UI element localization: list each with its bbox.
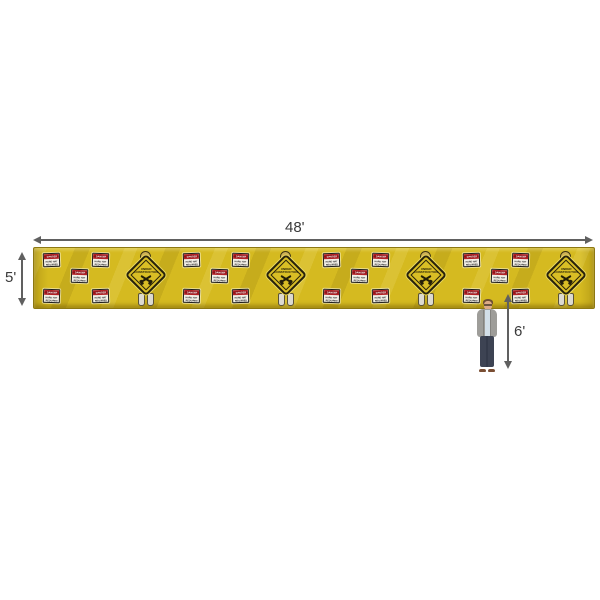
sign-line2: REQUIRED — [325, 299, 337, 300]
danger-hard-hat-sign: DANGER HARD HAT REQUIRED — [92, 289, 109, 304]
danger-hard-hat-sign: DANGER HARD HAT REQUIRED — [71, 269, 88, 284]
sign-line1: HARD HAT — [326, 260, 338, 261]
sign-body: HARD HAT REQUIRED — [93, 295, 108, 303]
danger-oval: DANGER — [212, 271, 227, 275]
diamond-line1: UNDER — [414, 268, 438, 270]
sign-line2: REQUIRED — [73, 279, 85, 280]
diamond-line2: CONSTRUCTION — [274, 271, 298, 273]
sign-body: HARD HAT REQUIRED — [184, 259, 199, 267]
sign-line2: REQUIRED — [374, 263, 386, 264]
danger-header-text: DANGER — [95, 291, 105, 294]
danger-oval: DANGER — [492, 271, 507, 275]
diamond-line2: CONSTRUCTION — [134, 271, 158, 273]
person-height-line — [507, 300, 509, 363]
danger-header-text: DANGER — [186, 291, 196, 294]
sign-line1: HARD HAT — [74, 276, 86, 277]
diamond-sign-content: UNDER CONSTRUCTION — [265, 259, 307, 291]
danger-hard-hat-sign: DANGER HARD HAT REQUIRED — [491, 269, 508, 284]
sign-line2: REQUIRED — [45, 299, 57, 300]
person-legs — [480, 336, 494, 367]
danger-hard-hat-sign: DANGER HARD HAT REQUIRED — [232, 253, 249, 268]
banner-product-mockup: 48' 5' DANGER HARD HAT REQUIRED — [0, 0, 600, 600]
sign-line2: REQUIRED — [235, 299, 247, 300]
arrowhead-down-icon — [18, 298, 26, 306]
construction-banner: DANGER HARD HAT REQUIRED DANGER HARD HAT… — [33, 247, 595, 309]
danger-oval: DANGER — [93, 255, 108, 259]
diamond-line1: UNDER — [274, 268, 298, 270]
danger-header-text: DANGER — [46, 291, 56, 294]
danger-oval: DANGER — [464, 291, 479, 295]
danger-header-text: DANGER — [466, 291, 476, 294]
sign-line2: REQUIRED — [353, 279, 365, 280]
sign-line2: REQUIRED — [185, 299, 197, 300]
diamond-line1: UNDER — [554, 268, 578, 270]
danger-oval: DANGER — [184, 291, 199, 295]
sign-line1: HARD HAT — [375, 260, 387, 261]
hammer-head — [428, 279, 433, 285]
sign-line1: HARD HAT — [466, 296, 478, 297]
sign-line1: HARD HAT — [95, 260, 107, 261]
arrowhead-up-icon — [18, 252, 26, 260]
danger-header-text: DANGER — [326, 255, 336, 258]
hammer-head — [148, 279, 153, 285]
sign-body: HARD HAT REQUIRED — [492, 275, 507, 283]
character-leg — [427, 293, 434, 306]
sign-body: HARD HAT REQUIRED — [212, 275, 227, 283]
hammer-head — [419, 279, 424, 285]
danger-hard-hat-sign: DANGER HARD HAT REQUIRED — [183, 289, 200, 304]
sign-line2: REQUIRED — [94, 263, 106, 264]
sign-line1: HARD HAT — [354, 276, 366, 277]
sign-line1: HARD HAT — [46, 260, 58, 261]
danger-header-text: DANGER — [186, 255, 196, 258]
sign-line2: REQUIRED — [186, 263, 198, 264]
danger-oval: DANGER — [44, 255, 59, 259]
diamond-sign-text: UNDER CONSTRUCTION — [262, 267, 310, 273]
danger-header-text: DANGER — [515, 291, 525, 294]
sign-body: HARD HAT REQUIRED — [72, 275, 87, 283]
sign-body: HARD HAT REQUIRED — [352, 275, 367, 283]
danger-header-text: DANGER — [515, 255, 525, 258]
danger-hard-hat-sign: DANGER HARD HAT REQUIRED — [372, 253, 389, 268]
sign-line1: HARD HAT — [186, 260, 198, 261]
diamond-line2: CONSTRUCTION — [414, 271, 438, 273]
danger-hard-hat-sign: DANGER HARD HAT REQUIRED — [351, 269, 368, 284]
under-construction-character: UNDER CONSTRUCTION — [124, 251, 168, 306]
danger-header-text: DANGER — [74, 271, 84, 274]
danger-header-text: DANGER — [46, 255, 56, 258]
sign-body: HARD HAT REQUIRED — [44, 259, 59, 267]
diamond-sign-content: UNDER CONSTRUCTION — [545, 259, 587, 291]
sign-line2: REQUIRED — [234, 263, 246, 264]
sign-body: HARD HAT REQUIRED — [233, 259, 248, 267]
danger-header-text: DANGER — [494, 271, 504, 274]
under-construction-character: UNDER CONSTRUCTION — [404, 251, 448, 306]
diamond-line2: CONSTRUCTION — [554, 271, 578, 273]
diamond-sign-text: UNDER CONSTRUCTION — [122, 267, 170, 273]
sign-line1: HARD HAT — [235, 260, 247, 261]
character-leg — [147, 293, 154, 306]
jacket-lapel — [490, 310, 491, 336]
sign-line1: HARD HAT — [95, 296, 107, 297]
danger-hard-hat-sign: DANGER HARD HAT REQUIRED — [372, 289, 389, 304]
sign-body: HARD HAT REQUIRED — [513, 295, 528, 303]
danger-header-text: DANGER — [354, 271, 364, 274]
character-leg — [287, 293, 294, 306]
sign-body: HARD HAT REQUIRED — [184, 295, 199, 303]
danger-hard-hat-sign: DANGER HARD HAT REQUIRED — [92, 253, 109, 268]
danger-hard-hat-sign: DANGER HARD HAT REQUIRED — [211, 269, 228, 284]
danger-oval: DANGER — [373, 255, 388, 259]
hammer-head — [139, 279, 144, 285]
danger-oval: DANGER — [93, 291, 108, 295]
danger-header-text: DANGER — [375, 255, 385, 258]
danger-header-text: DANGER — [95, 255, 105, 258]
sign-line1: HARD HAT — [186, 296, 198, 297]
sign-body: HARD HAT REQUIRED — [324, 259, 339, 267]
danger-oval: DANGER — [513, 291, 528, 295]
crossed-hammers-icon — [278, 274, 294, 283]
danger-oval: DANGER — [373, 291, 388, 295]
danger-header-text: DANGER — [326, 291, 336, 294]
danger-hard-hat-sign: DANGER HARD HAT REQUIRED — [43, 253, 60, 268]
arrowhead-left-icon — [33, 236, 41, 244]
sign-line2: REQUIRED — [375, 299, 387, 300]
scale-person — [475, 299, 500, 372]
diamond-sign-content: UNDER CONSTRUCTION — [125, 259, 167, 291]
arrowhead-down-icon — [504, 361, 512, 369]
danger-oval: DANGER — [352, 271, 367, 275]
sign-body: HARD HAT REQUIRED — [233, 295, 248, 303]
danger-hard-hat-sign: DANGER HARD HAT REQUIRED — [463, 253, 480, 268]
danger-oval: DANGER — [513, 255, 528, 259]
person-shoe — [479, 369, 486, 373]
under-construction-character: UNDER CONSTRUCTION — [544, 251, 588, 306]
crossed-hammers-icon — [558, 274, 574, 283]
character-leg — [138, 293, 145, 306]
danger-hard-hat-sign: DANGER HARD HAT REQUIRED — [512, 253, 529, 268]
diamond-sign-text: UNDER CONSTRUCTION — [402, 267, 450, 273]
danger-oval: DANGER — [72, 271, 87, 275]
danger-hard-hat-sign: DANGER HARD HAT REQUIRED — [43, 289, 60, 304]
character-leg — [567, 293, 574, 306]
sign-line2: REQUIRED — [326, 263, 338, 264]
sign-line2: REQUIRED — [514, 263, 526, 264]
danger-oval: DANGER — [324, 255, 339, 259]
danger-hard-hat-sign: DANGER HARD HAT REQUIRED — [323, 253, 340, 268]
sign-line2: REQUIRED — [515, 299, 527, 300]
person-height-label: 6' — [514, 324, 525, 339]
banner-pattern-unit: DANGER HARD HAT REQUIRED DANGER HARD HAT… — [34, 248, 174, 308]
diamond-sign-text: UNDER CONSTRUCTION — [542, 267, 590, 273]
sign-line1: HARD HAT — [235, 296, 247, 297]
sign-line2: REQUIRED — [466, 263, 478, 264]
sign-line1: HARD HAT — [46, 296, 58, 297]
danger-hard-hat-sign: DANGER HARD HAT REQUIRED — [183, 253, 200, 268]
sign-body: HARD HAT REQUIRED — [93, 259, 108, 267]
sign-body: HARD HAT REQUIRED — [44, 295, 59, 303]
sign-body: HARD HAT REQUIRED — [373, 295, 388, 303]
danger-header-text: DANGER — [235, 291, 245, 294]
sign-body: HARD HAT REQUIRED — [324, 295, 339, 303]
sign-body: HARD HAT REQUIRED — [513, 259, 528, 267]
danger-header-text: DANGER — [466, 255, 476, 258]
sign-line2: REQUIRED — [493, 279, 505, 280]
danger-oval: DANGER — [184, 255, 199, 259]
hammer-head — [559, 279, 564, 285]
hammer-head — [288, 279, 293, 285]
height-dimension-line — [21, 258, 23, 300]
sign-body: HARD HAT REQUIRED — [464, 259, 479, 267]
sign-line1: HARD HAT — [214, 276, 226, 277]
danger-oval: DANGER — [233, 291, 248, 295]
danger-hard-hat-sign: DANGER HARD HAT REQUIRED — [232, 289, 249, 304]
sign-line2: REQUIRED — [46, 263, 58, 264]
sign-line1: HARD HAT — [515, 296, 527, 297]
arrowhead-right-icon — [585, 236, 593, 244]
jacket-lapel — [483, 310, 484, 336]
danger-header-text: DANGER — [235, 255, 245, 258]
danger-oval: DANGER — [464, 255, 479, 259]
height-dimension-label: 5' — [5, 270, 16, 285]
crossed-hammers-icon — [138, 274, 154, 283]
danger-hard-hat-sign: DANGER HARD HAT REQUIRED — [323, 289, 340, 304]
character-leg — [278, 293, 285, 306]
sign-line1: HARD HAT — [494, 276, 506, 277]
under-construction-character: UNDER CONSTRUCTION — [264, 251, 308, 306]
hammer-head — [279, 279, 284, 285]
sign-body: HARD HAT REQUIRED — [373, 259, 388, 267]
diamond-sign-content: UNDER CONSTRUCTION — [405, 259, 447, 291]
sign-line2: REQUIRED — [95, 299, 107, 300]
sign-line1: HARD HAT — [375, 296, 387, 297]
width-dimension-label: 48' — [285, 220, 305, 235]
width-dimension-line — [40, 239, 586, 241]
character-leg — [558, 293, 565, 306]
character-leg — [418, 293, 425, 306]
banner-pattern-unit: DANGER HARD HAT REQUIRED DANGER HARD HAT… — [314, 248, 454, 308]
danger-oval: DANGER — [324, 291, 339, 295]
person-shoe — [488, 369, 495, 373]
danger-oval: DANGER — [233, 255, 248, 259]
danger-header-text: DANGER — [375, 291, 385, 294]
diamond-line1: UNDER — [134, 268, 158, 270]
sign-line1: HARD HAT — [326, 296, 338, 297]
person-glasses — [484, 304, 492, 306]
danger-hard-hat-sign: DANGER HARD HAT REQUIRED — [512, 289, 529, 304]
sign-line2: REQUIRED — [213, 279, 225, 280]
hammer-head — [568, 279, 573, 285]
banner-pattern-unit: DANGER HARD HAT REQUIRED DANGER HARD HAT… — [174, 248, 314, 308]
danger-header-text: DANGER — [214, 271, 224, 274]
danger-oval: DANGER — [44, 291, 59, 295]
sign-line1: HARD HAT — [515, 260, 527, 261]
sign-line1: HARD HAT — [466, 260, 478, 261]
crossed-hammers-icon — [418, 274, 434, 283]
